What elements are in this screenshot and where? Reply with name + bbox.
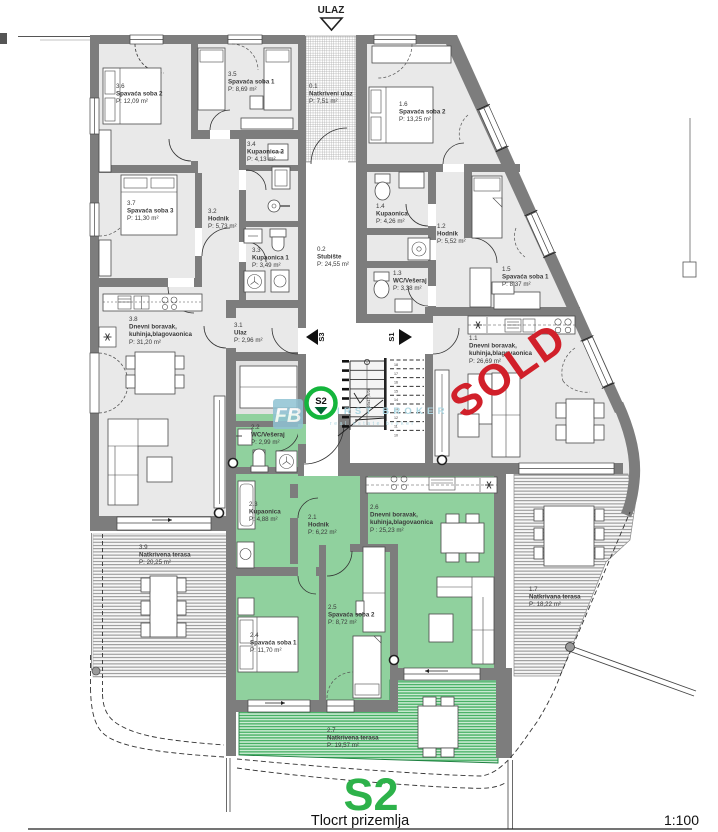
svg-text:S2: S2 — [315, 396, 327, 407]
svg-text:1:100: 1:100 — [664, 812, 699, 828]
svg-text:real estate broker: real estate broker — [330, 421, 416, 427]
svg-text:16: 16 — [394, 381, 398, 385]
svg-text:FIRST BROKER: FIRST BROKER — [327, 406, 449, 417]
svg-text:18: 18 — [394, 363, 398, 367]
svg-text:10: 10 — [394, 433, 398, 437]
svg-text:ULAZ: ULAZ — [318, 5, 345, 16]
svg-text:14: 14 — [394, 398, 398, 402]
svg-text:FB: FB — [275, 405, 302, 427]
svg-text:Tlocrt prizemlja: Tlocrt prizemlja — [311, 813, 410, 829]
svg-text:S1: S1 — [387, 332, 396, 341]
svg-text:16x17,5/28: 16x17,5/28 — [366, 387, 371, 408]
svg-text:17: 17 — [394, 372, 398, 376]
svg-text:S3: S3 — [317, 332, 326, 341]
svg-text:15: 15 — [394, 389, 398, 393]
